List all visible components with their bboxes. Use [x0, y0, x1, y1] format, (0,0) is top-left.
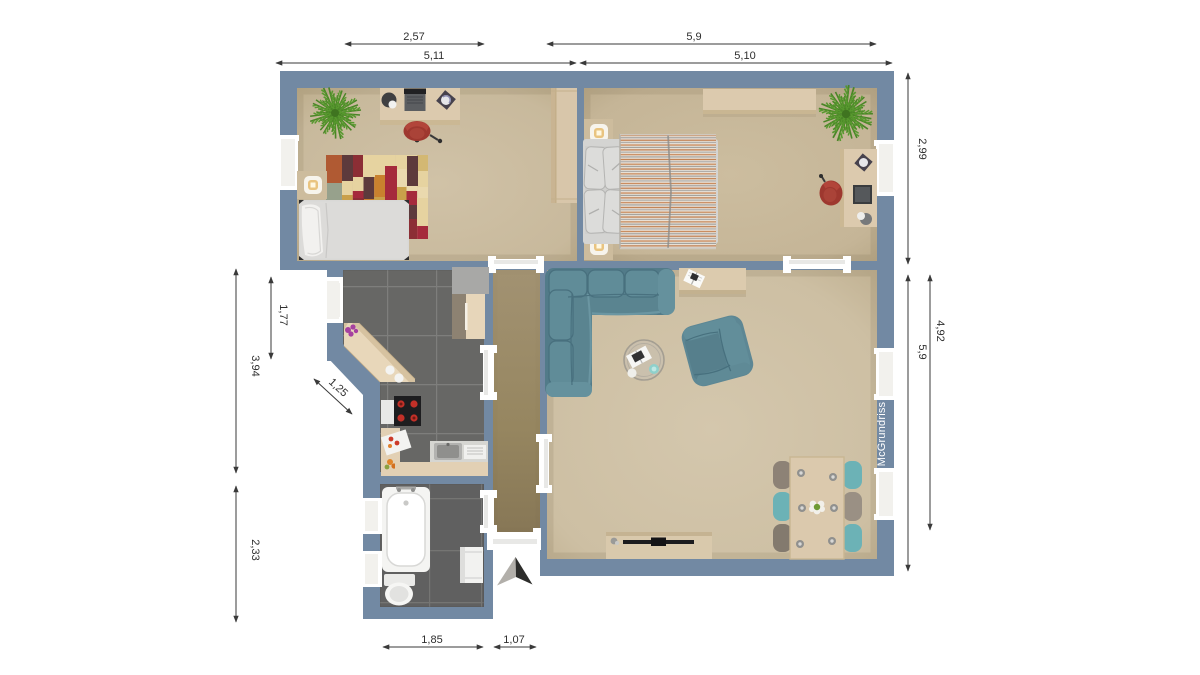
- svg-text:5,10: 5,10: [734, 50, 755, 62]
- svg-text:3,94: 3,94: [249, 355, 261, 376]
- svg-text:1,07: 1,07: [503, 634, 524, 646]
- svg-text:5,11: 5,11: [424, 50, 445, 62]
- svg-text:2,33: 2,33: [249, 539, 261, 560]
- svg-text:4,92: 4,92: [934, 320, 946, 341]
- svg-text:1,85: 1,85: [421, 634, 442, 646]
- svg-text:1,77: 1,77: [277, 304, 289, 325]
- svg-text:2,57: 2,57: [403, 31, 424, 43]
- svg-text:5,9: 5,9: [916, 344, 928, 359]
- svg-text:5,9: 5,9: [686, 31, 701, 43]
- svg-text:McGrundriss: McGrundriss: [876, 401, 888, 466]
- svg-text:2,99: 2,99: [916, 138, 928, 159]
